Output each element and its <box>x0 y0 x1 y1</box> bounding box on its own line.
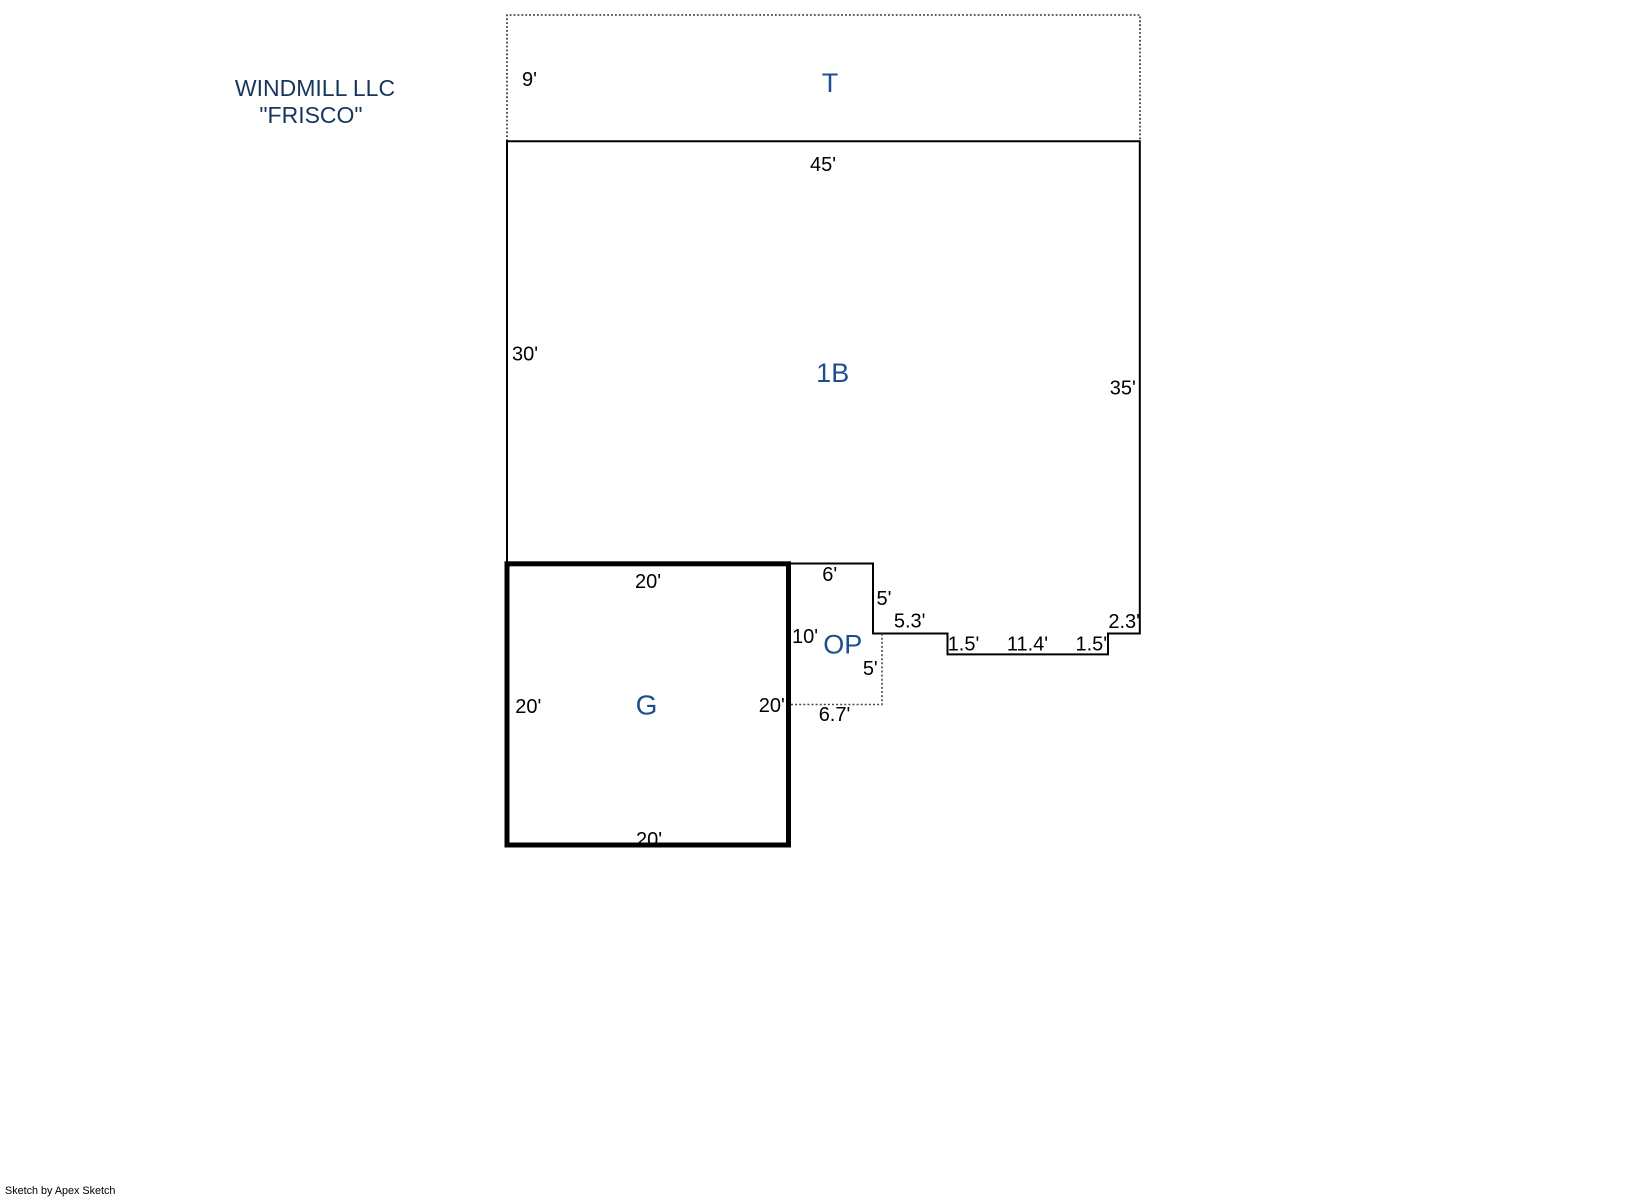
svg-text:30': 30' <box>512 344 538 366</box>
svg-text:1B: 1B <box>816 358 849 388</box>
svg-text:5': 5' <box>863 658 878 680</box>
svg-text:6.7': 6.7' <box>819 704 851 726</box>
svg-text:20': 20' <box>636 829 662 851</box>
svg-text:6': 6' <box>822 564 837 586</box>
svg-text:G: G <box>636 690 658 721</box>
svg-text:20': 20' <box>515 696 541 718</box>
svg-text:5.3': 5.3' <box>894 611 926 633</box>
svg-text:2.3': 2.3' <box>1108 611 1140 633</box>
svg-text:"FRISCO": "FRISCO" <box>259 102 362 128</box>
svg-text:OP: OP <box>823 630 862 660</box>
svg-text:1.5': 1.5' <box>948 633 980 655</box>
svg-text:WINDMILL LLC: WINDMILL LLC <box>235 75 395 101</box>
svg-text:9': 9' <box>522 69 537 91</box>
svg-text:Sketch by Apex Sketch: Sketch by Apex Sketch <box>5 1185 115 1197</box>
svg-text:20': 20' <box>635 571 661 593</box>
svg-text:20': 20' <box>759 695 785 717</box>
svg-text:10': 10' <box>792 626 818 648</box>
svg-text:11.4': 11.4' <box>1007 633 1048 655</box>
svg-text:1.5': 1.5' <box>1075 633 1107 655</box>
svg-text:45': 45' <box>810 154 836 176</box>
svg-text:35': 35' <box>1110 378 1136 400</box>
svg-text:T: T <box>822 68 839 98</box>
svg-text:5': 5' <box>877 588 892 610</box>
